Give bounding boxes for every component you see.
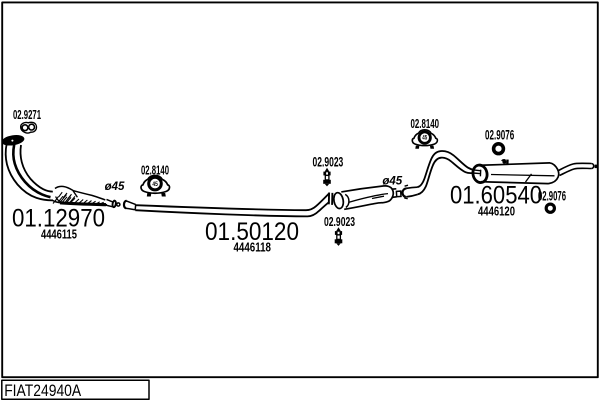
svg-text:4446120: 4446120 (478, 204, 515, 218)
svg-text:45: 45 (422, 136, 427, 142)
svg-text:45: 45 (152, 181, 158, 188)
svg-text:FIAT24940A: FIAT24940A (4, 381, 82, 400)
svg-text:02.8140: 02.8140 (411, 116, 440, 131)
svg-text:4446115: 4446115 (41, 228, 77, 242)
svg-text:4446118: 4446118 (234, 240, 272, 254)
svg-text:02.9076: 02.9076 (485, 128, 514, 143)
svg-text:ø45: ø45 (105, 181, 125, 193)
svg-text:ø45: ø45 (382, 175, 402, 187)
svg-text:02.9023: 02.9023 (324, 214, 355, 229)
svg-text:02.9271: 02.9271 (13, 107, 41, 122)
svg-text:02.9076: 02.9076 (538, 189, 566, 204)
svg-text:02.9023: 02.9023 (313, 155, 344, 170)
